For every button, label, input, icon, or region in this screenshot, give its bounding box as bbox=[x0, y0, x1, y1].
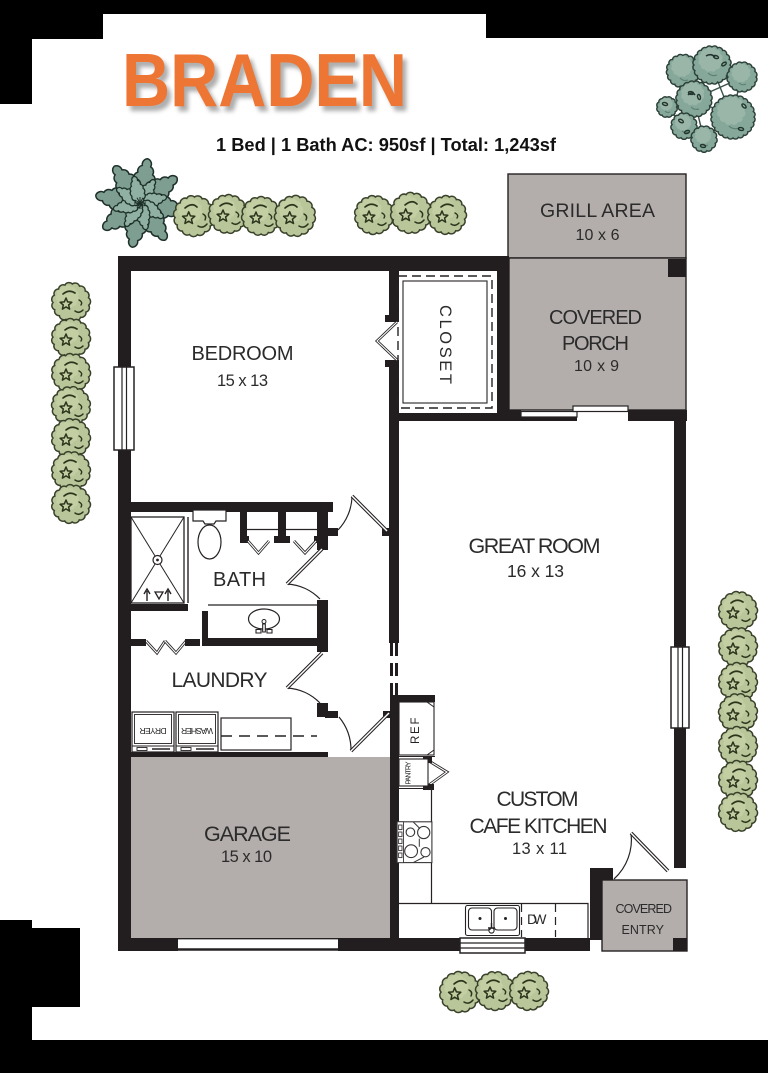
svg-text:CLOSET: CLOSET bbox=[436, 305, 454, 385]
svg-text:15 x 13: 15 x 13 bbox=[217, 372, 269, 390]
svg-text:CUSTOM: CUSTOM bbox=[497, 788, 580, 811]
svg-text:COVERED: COVERED bbox=[616, 902, 673, 916]
svg-text:PANTRY: PANTRY bbox=[406, 761, 413, 784]
svg-text:1 Bed | 1 Bath AC: 950sf | Tot: 1 Bed | 1 Bath AC: 950sf | Total: 1,243s… bbox=[216, 134, 557, 155]
svg-text:REF: REF bbox=[410, 716, 422, 744]
svg-text:COVERED: COVERED bbox=[549, 307, 643, 329]
svg-text:BRADEN: BRADEN bbox=[122, 38, 407, 122]
svg-text:BEDROOM: BEDROOM bbox=[192, 343, 295, 365]
svg-text:PORCH: PORCH bbox=[562, 333, 630, 355]
svg-text:13 x 11: 13 x 11 bbox=[512, 840, 568, 858]
svg-text:ENTRY: ENTRY bbox=[622, 923, 665, 937]
svg-text:GARAGE: GARAGE bbox=[204, 822, 292, 846]
svg-text:GRILL AREA: GRILL AREA bbox=[540, 200, 656, 222]
svg-text:CAFE KITCHEN: CAFE KITCHEN bbox=[470, 815, 609, 838]
svg-text:DW: DW bbox=[527, 911, 547, 927]
svg-text:10 x 6: 10 x 6 bbox=[576, 227, 621, 244]
svg-text:15 x 10: 15 x 10 bbox=[221, 848, 273, 866]
svg-text:WASHER: WASHER bbox=[181, 726, 213, 736]
svg-text:LAUNDRY: LAUNDRY bbox=[172, 669, 269, 692]
svg-text:DRYER: DRYER bbox=[140, 726, 167, 736]
svg-text:BATH: BATH bbox=[213, 569, 267, 591]
svg-text:10 x 9: 10 x 9 bbox=[574, 358, 620, 375]
svg-text:16 x 13: 16 x 13 bbox=[507, 561, 565, 581]
svg-text:GREAT ROOM: GREAT ROOM bbox=[469, 534, 602, 558]
